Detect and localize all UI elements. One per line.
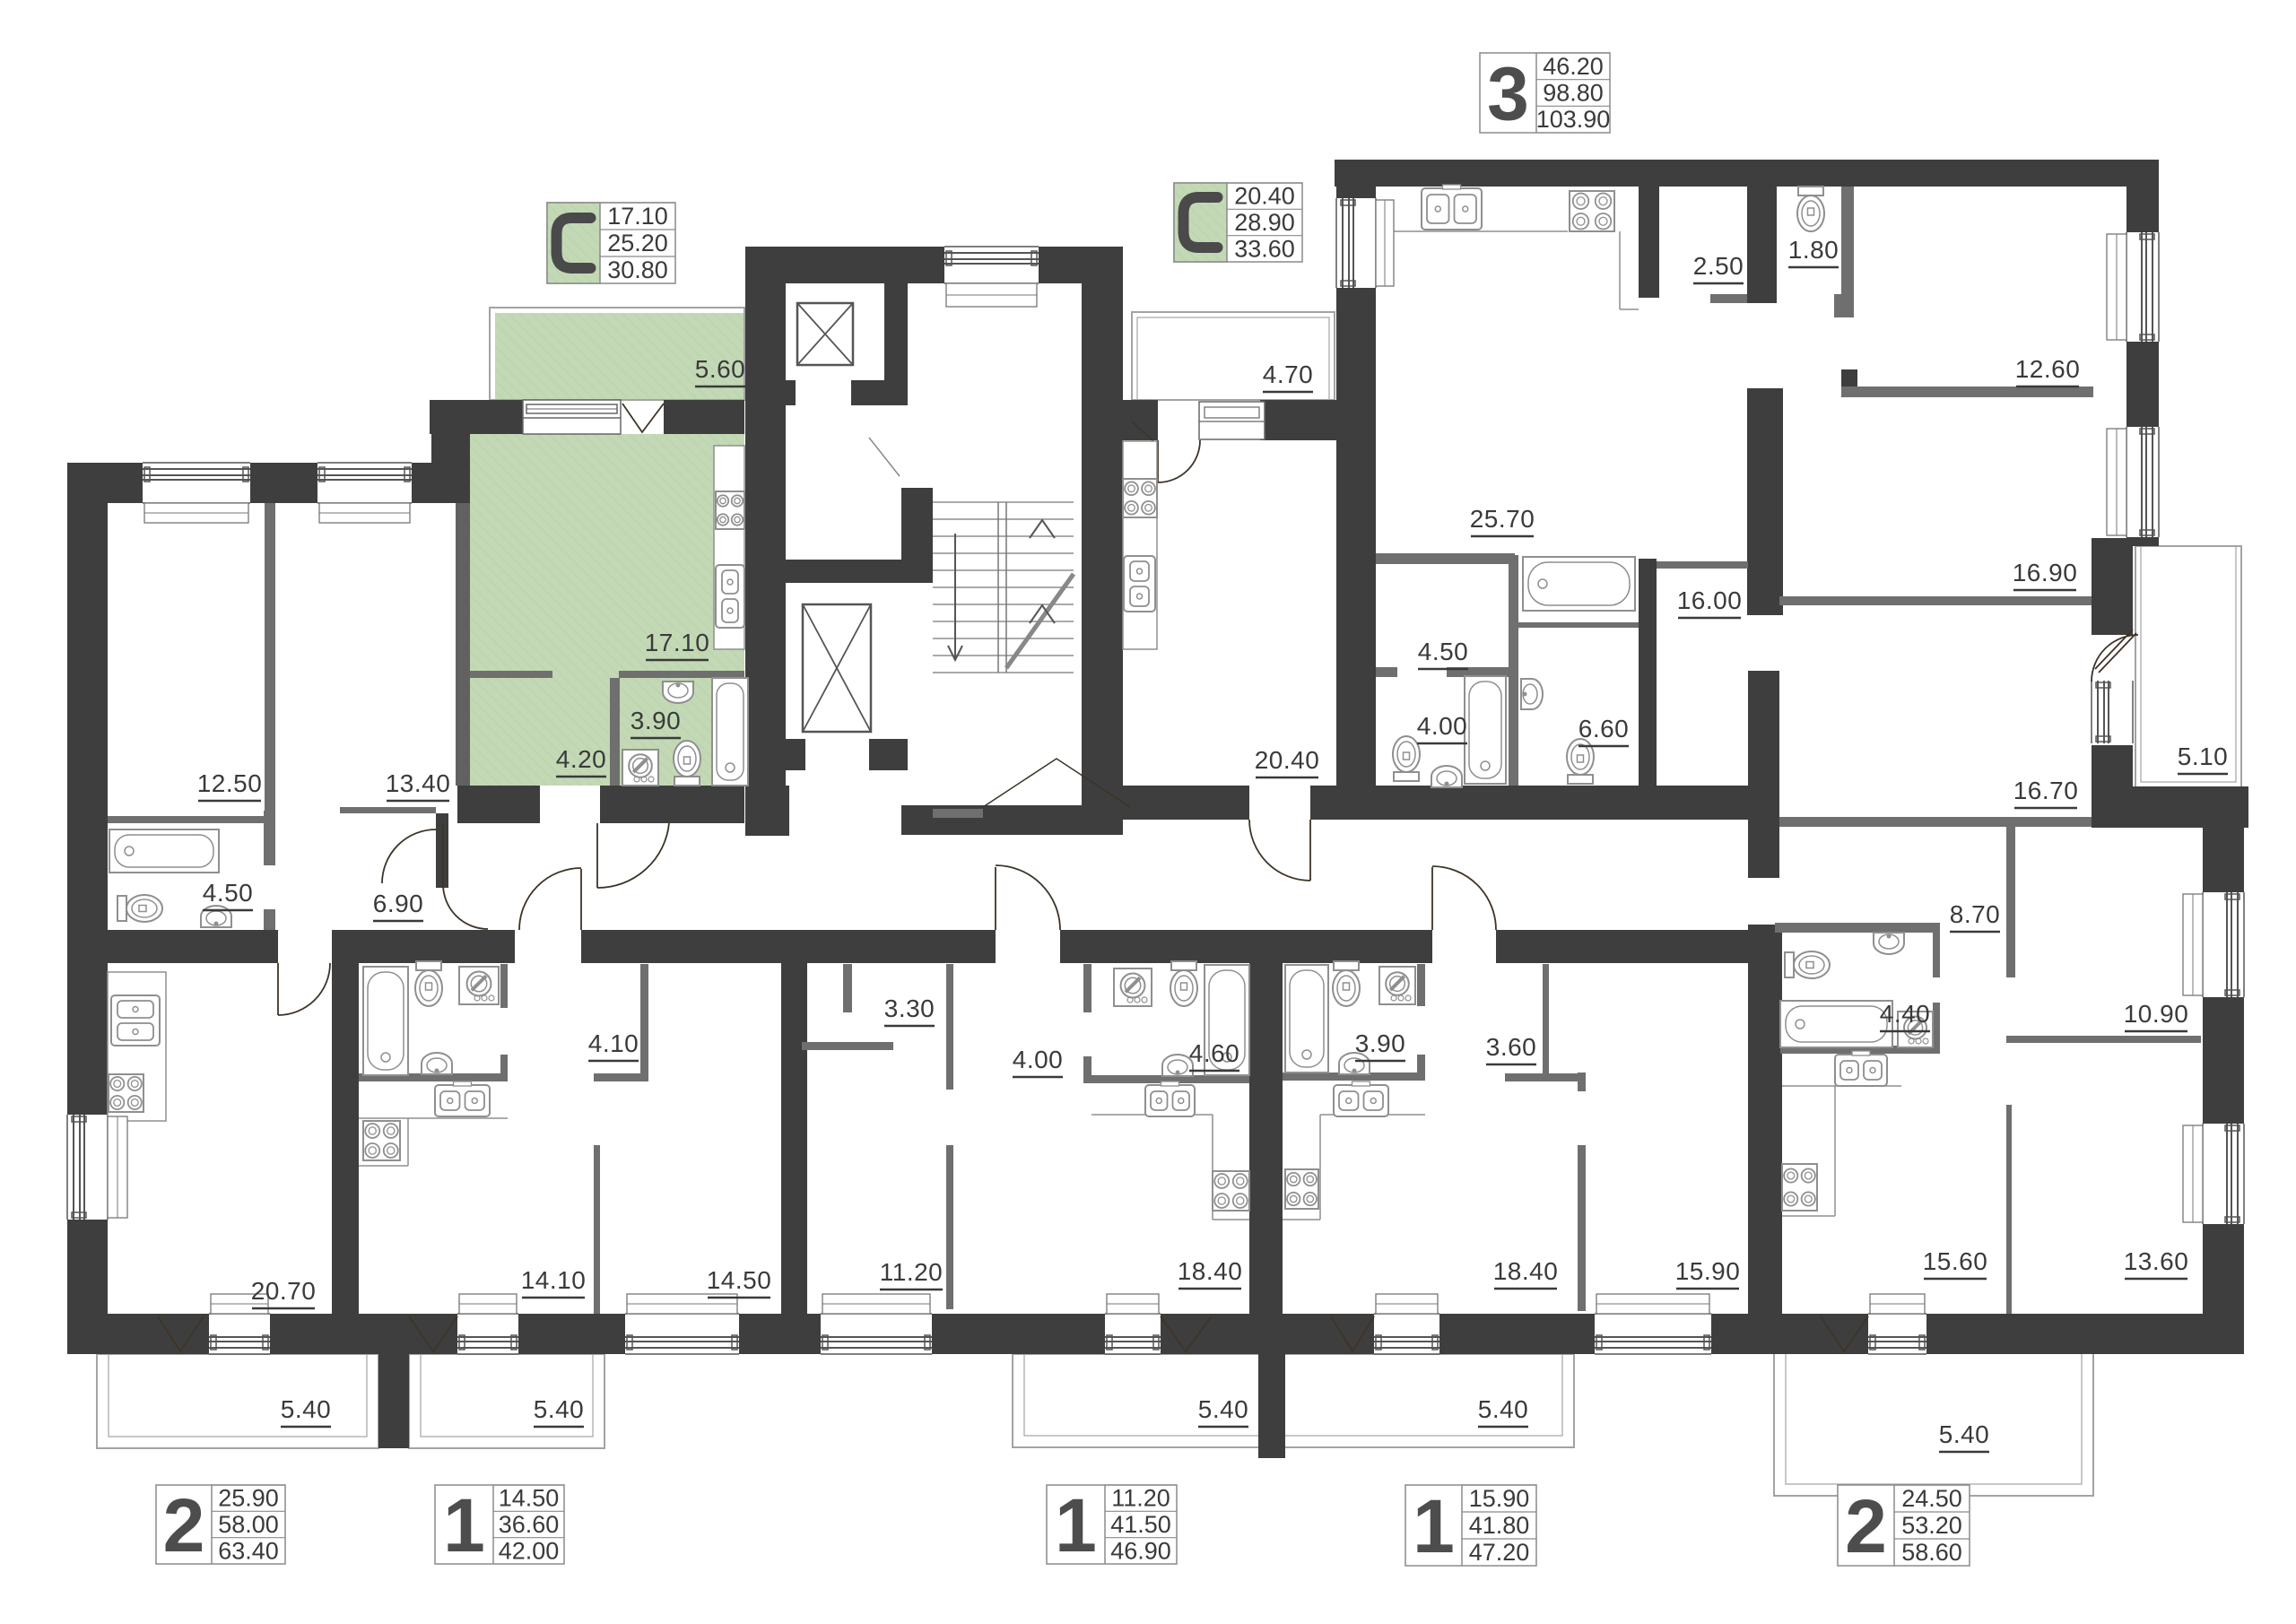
svg-text:17.10: 17.10 bbox=[645, 629, 710, 656]
svg-text:1.80: 1.80 bbox=[1788, 236, 1839, 264]
svg-text:4.70: 4.70 bbox=[1263, 360, 1314, 388]
svg-text:63.40: 63.40 bbox=[218, 1537, 279, 1564]
svg-text:1: 1 bbox=[1413, 1484, 1455, 1568]
svg-text:18.40: 18.40 bbox=[1178, 1257, 1243, 1285]
svg-text:11.20: 11.20 bbox=[1111, 1485, 1170, 1512]
svg-text:33.60: 33.60 bbox=[1234, 235, 1295, 262]
svg-text:11.20: 11.20 bbox=[880, 1258, 944, 1286]
svg-text:18.40: 18.40 bbox=[1493, 1257, 1559, 1285]
svg-text:46.90: 46.90 bbox=[1110, 1537, 1171, 1564]
svg-text:5.60: 5.60 bbox=[695, 355, 746, 383]
svg-text:3: 3 bbox=[1487, 52, 1529, 136]
svg-text:41.80: 41.80 bbox=[1469, 1512, 1530, 1539]
svg-text:5.40: 5.40 bbox=[281, 1395, 332, 1423]
svg-text:4.00: 4.00 bbox=[1013, 1046, 1064, 1073]
svg-text:4.60: 4.60 bbox=[1189, 1039, 1240, 1067]
svg-text:36.60: 36.60 bbox=[499, 1511, 560, 1538]
svg-text:17.10: 17.10 bbox=[607, 203, 668, 230]
svg-text:5.40: 5.40 bbox=[1939, 1420, 1990, 1448]
svg-text:30.80: 30.80 bbox=[607, 256, 668, 283]
svg-text:16.00: 16.00 bbox=[1677, 586, 1743, 614]
svg-text:24.50: 24.50 bbox=[1901, 1485, 1962, 1512]
svg-text:12.60: 12.60 bbox=[2015, 355, 2081, 383]
svg-text:2.50: 2.50 bbox=[1693, 252, 1744, 280]
svg-text:15.90: 15.90 bbox=[1675, 1257, 1741, 1285]
svg-text:20.40: 20.40 bbox=[1255, 746, 1320, 774]
svg-text:3.90: 3.90 bbox=[631, 707, 682, 734]
svg-text:10.90: 10.90 bbox=[2124, 1000, 2189, 1028]
svg-text:5.40: 5.40 bbox=[534, 1395, 585, 1423]
svg-text:6.60: 6.60 bbox=[1578, 715, 1630, 743]
svg-text:4.10: 4.10 bbox=[588, 1029, 639, 1057]
svg-text:98.80: 98.80 bbox=[1543, 80, 1604, 107]
svg-text:3.30: 3.30 bbox=[884, 994, 935, 1022]
svg-text:4.50: 4.50 bbox=[203, 879, 254, 907]
svg-text:25.70: 25.70 bbox=[1470, 505, 1535, 533]
svg-text:13.40: 13.40 bbox=[386, 769, 451, 797]
svg-text:103.90: 103.90 bbox=[1536, 106, 1611, 133]
svg-text:13.60: 13.60 bbox=[2124, 1247, 2189, 1275]
svg-text:16.70: 16.70 bbox=[2013, 777, 2079, 804]
svg-text:1: 1 bbox=[443, 1483, 485, 1568]
svg-text:42.00: 42.00 bbox=[499, 1537, 560, 1564]
svg-text:20.40: 20.40 bbox=[1234, 183, 1295, 210]
svg-text:25.20: 25.20 bbox=[607, 230, 668, 256]
svg-text:4.40: 4.40 bbox=[1880, 1000, 1931, 1028]
svg-text:5.10: 5.10 bbox=[2178, 743, 2229, 770]
svg-text:3.60: 3.60 bbox=[1486, 1033, 1537, 1061]
svg-text:2: 2 bbox=[1845, 1484, 1887, 1568]
svg-text:53.20: 53.20 bbox=[1901, 1512, 1962, 1539]
svg-text:14.10: 14.10 bbox=[521, 1266, 587, 1294]
svg-text:5.40: 5.40 bbox=[1198, 1395, 1249, 1423]
svg-text:47.20: 47.20 bbox=[1469, 1539, 1530, 1566]
svg-text:58.60: 58.60 bbox=[1901, 1539, 1962, 1566]
svg-text:16.90: 16.90 bbox=[2013, 559, 2078, 586]
svg-text:41.50: 41.50 bbox=[1110, 1511, 1171, 1538]
svg-text:4.00: 4.00 bbox=[1417, 712, 1468, 740]
svg-text:25.90: 25.90 bbox=[218, 1485, 279, 1512]
svg-text:14.50: 14.50 bbox=[499, 1485, 560, 1512]
svg-text:1: 1 bbox=[1055, 1483, 1097, 1568]
svg-text:46.20: 46.20 bbox=[1543, 53, 1604, 80]
svg-text:28.90: 28.90 bbox=[1234, 209, 1295, 236]
svg-text:2: 2 bbox=[163, 1483, 205, 1568]
svg-text:3.90: 3.90 bbox=[1355, 1029, 1406, 1057]
svg-text:8.70: 8.70 bbox=[1950, 900, 2001, 928]
svg-text:15.90: 15.90 bbox=[1469, 1485, 1530, 1512]
svg-text:15.60: 15.60 bbox=[1923, 1247, 1988, 1275]
svg-text:58.00: 58.00 bbox=[218, 1511, 279, 1538]
svg-text:6.90: 6.90 bbox=[373, 890, 424, 917]
svg-text:5.40: 5.40 bbox=[1478, 1395, 1529, 1423]
svg-text:12.50: 12.50 bbox=[197, 769, 263, 797]
svg-text:4.50: 4.50 bbox=[1418, 638, 1469, 665]
svg-text:14.50: 14.50 bbox=[707, 1266, 772, 1294]
svg-text:4.20: 4.20 bbox=[556, 745, 607, 773]
svg-text:20.70: 20.70 bbox=[251, 1277, 317, 1305]
